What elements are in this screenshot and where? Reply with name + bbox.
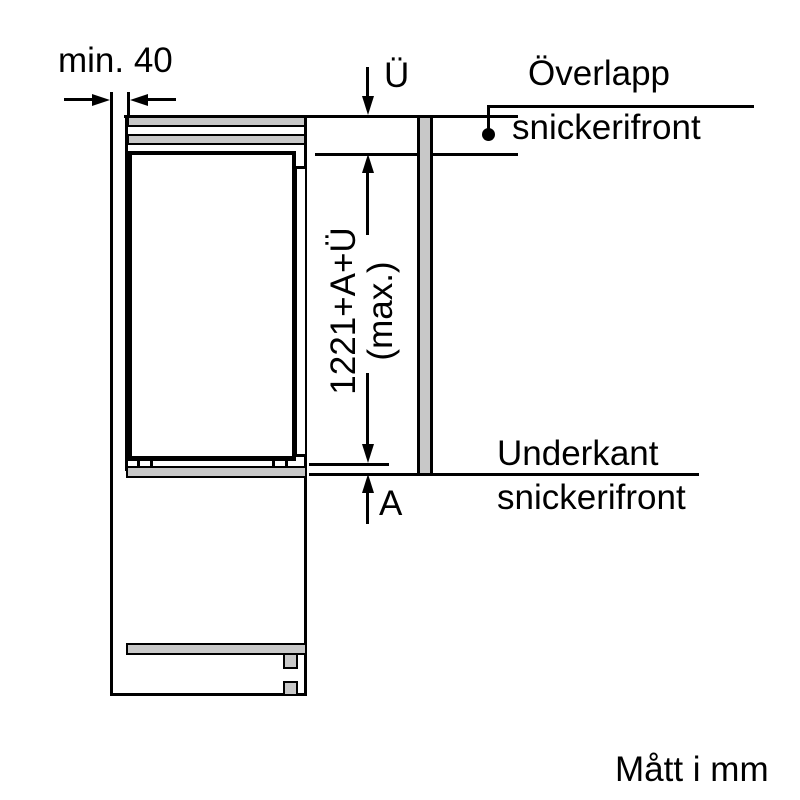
panel-height-arrowhead-up xyxy=(362,154,374,173)
appliance-door-panel xyxy=(128,151,296,461)
installation-diagram: min. 40 Ü Överlapp snickerifront 1221+A+… xyxy=(0,0,800,800)
appliance-bottom-edge xyxy=(110,693,307,696)
panel-height-label-line1: 1221+A+Ü xyxy=(325,221,362,401)
door-bottom-tick-line xyxy=(309,463,389,466)
bottom-edge-callout-line1: Underkant xyxy=(497,435,658,474)
plinth-panel xyxy=(126,643,307,655)
bottom-gap-arrow-shaft xyxy=(366,492,369,524)
hinge-block-lower xyxy=(283,681,298,696)
bottom-edge-callout-line2: snickerifront xyxy=(497,479,686,518)
bottom-gap-label: A xyxy=(379,485,402,524)
top-mounting-rail-2 xyxy=(127,134,306,145)
overlap-arrowhead-down xyxy=(362,96,374,115)
bottom-gap-arrowhead-up xyxy=(362,474,374,493)
overlap-dim-label: Ü xyxy=(384,57,409,96)
min40-arrow-shaft-left xyxy=(64,98,93,101)
overlap-arrow-shaft xyxy=(366,67,369,98)
min40-arrowhead-left xyxy=(92,94,110,106)
min-gap-label: min. 40 xyxy=(58,42,173,81)
door-side-profile xyxy=(295,166,307,457)
top-mounting-rail-1 xyxy=(127,116,306,127)
hinge-block-upper xyxy=(283,653,298,669)
bottom-fixing-rail xyxy=(126,466,307,478)
furniture-front-panel xyxy=(417,116,433,475)
panel-height-label: 1221+A+Ü (max.) xyxy=(325,221,399,401)
units-note: Mått i mm xyxy=(615,751,769,790)
min40-arrowhead-right xyxy=(130,94,148,106)
panel-height-label-line2: (max.) xyxy=(362,221,399,401)
overlap-leader-dot xyxy=(482,128,495,141)
min40-arrow-shaft-right xyxy=(148,98,176,101)
overlap-callout-line1: Överlapp xyxy=(528,55,670,94)
niche-wall-line xyxy=(110,92,113,696)
overlap-callout-line2: snickerifront xyxy=(512,109,701,148)
panel-height-arrowhead-down xyxy=(362,444,374,463)
